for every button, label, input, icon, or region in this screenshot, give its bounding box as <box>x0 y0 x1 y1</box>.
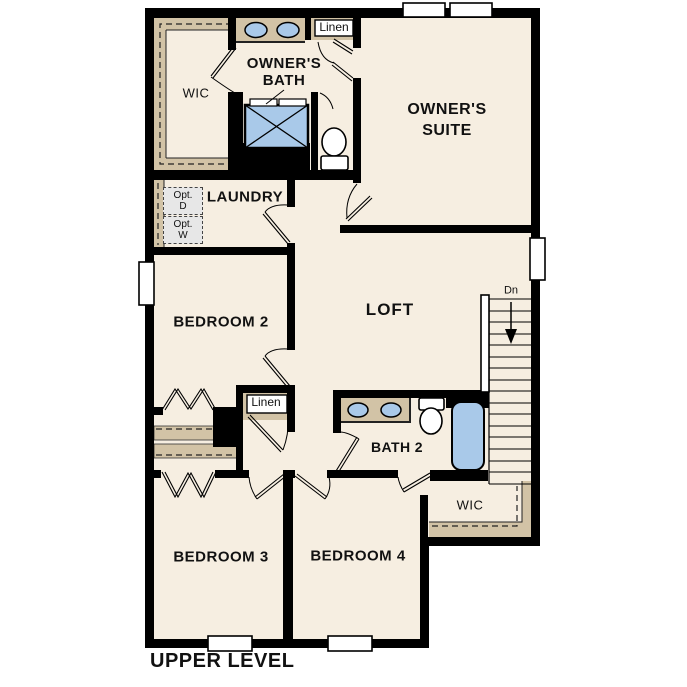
label-owners-bath-line2: BATH <box>247 72 322 89</box>
label-owners-wic: WIC <box>183 87 210 102</box>
window <box>530 238 545 280</box>
opt-dryer-line2: D <box>174 201 193 212</box>
toilet-owners-bath-bowl <box>322 128 346 156</box>
floor-plan-page: WIC OWNER'S BATH Linen OWNER'S SUITE LAU… <box>0 0 687 687</box>
label-loft: LOFT <box>366 300 414 320</box>
owners-wic-shelf-bottom <box>154 158 228 172</box>
label-stairs-down: Dn <box>504 285 518 298</box>
label-bedroom3: BEDROOM 3 <box>173 548 268 565</box>
optional-dryer-box: Opt. D <box>163 187 203 215</box>
label-bedroom4: BEDROOM 4 <box>310 547 405 564</box>
optional-washer-box: Opt. W <box>163 216 203 244</box>
label-owners-bath-line1: OWNER'S <box>247 55 322 72</box>
label-bedroom2: BEDROOM 2 <box>173 313 268 330</box>
label-owners-suite: OWNER'S SUITE <box>407 100 486 142</box>
window <box>208 636 252 651</box>
opt-washer-line1: Opt. <box>174 219 193 230</box>
label-linen-lower: Linen <box>251 396 280 410</box>
label-owners-bath: OWNER'S BATH <box>247 55 322 90</box>
sink <box>348 403 368 417</box>
window <box>139 262 154 305</box>
floor-plan-drawing <box>0 0 687 687</box>
label-owners-suite-line2: SUITE <box>407 121 486 142</box>
label-laundry: LAUNDRY <box>207 188 283 205</box>
opt-dryer-line1: Opt. <box>174 190 193 201</box>
bedroom2-closet-shelf <box>154 426 218 440</box>
label-linen-upper: Linen <box>319 21 348 35</box>
window <box>450 3 492 17</box>
bedroom4-wic-shelf-bottom <box>429 522 531 537</box>
window <box>328 636 372 651</box>
opt-washer-line2: W <box>174 230 193 241</box>
sink <box>245 23 267 38</box>
bathtub <box>452 402 484 470</box>
sink <box>381 403 401 417</box>
page-title: UPPER LEVEL <box>150 650 294 673</box>
label-owners-suite-line1: OWNER'S <box>407 100 486 121</box>
toilet-bath2-bowl <box>420 408 442 434</box>
label-bath2: BATH 2 <box>371 439 423 455</box>
sink <box>277 23 299 38</box>
shower-door-track <box>279 99 306 106</box>
stair-railing <box>481 295 489 392</box>
toilet-owners-bath-tank <box>321 156 348 170</box>
label-bedroom4-wic: WIC <box>457 499 484 514</box>
window <box>403 3 445 17</box>
shower-door-track <box>250 99 277 106</box>
